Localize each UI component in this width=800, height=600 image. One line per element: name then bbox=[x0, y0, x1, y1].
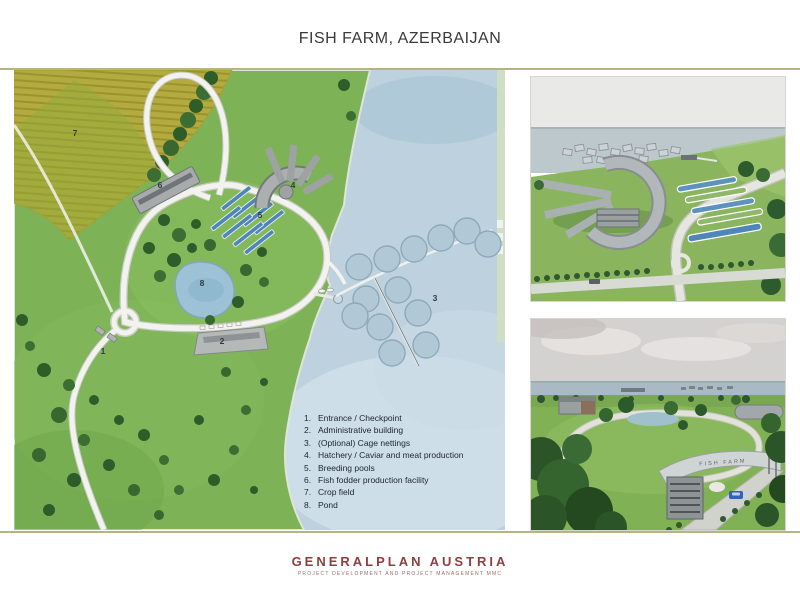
map-marker-4: 4 bbox=[291, 180, 296, 190]
left-building bbox=[559, 397, 595, 414]
footer-tagline: PROJECT DEVELOPMENT AND PROJECT MANAGEME… bbox=[0, 571, 800, 577]
far-shore-strip bbox=[497, 70, 505, 342]
page-title: FISH FARM, AZERBAIJAN bbox=[0, 30, 800, 48]
boat bbox=[319, 289, 326, 293]
boat bbox=[681, 155, 697, 160]
legend-item: 4.Hatchery / Caviar and meat production bbox=[304, 449, 514, 461]
sky bbox=[531, 77, 785, 127]
map-marker-6: 6 bbox=[158, 180, 163, 190]
render-entrance-view: FISH FARM bbox=[530, 318, 786, 531]
legend-item: 1.Entrance / Checkpoint bbox=[304, 412, 514, 424]
map-marker-7: 7 bbox=[73, 128, 78, 138]
legend-item: 6.Fish fodder production facility bbox=[304, 474, 514, 486]
legend-item: 5.Breeding pools bbox=[304, 462, 514, 474]
footer-company-logo: GENERALPLAN AUSTRIA bbox=[0, 554, 800, 569]
legend-item: 8.Pond bbox=[304, 499, 514, 511]
legend: 1.Entrance / Checkpoint 2.Administrative… bbox=[304, 412, 514, 511]
sea bbox=[531, 381, 785, 397]
car-blue bbox=[729, 491, 743, 499]
sculpture bbox=[709, 482, 725, 492]
legend-item: 2.Administrative building bbox=[304, 424, 514, 436]
legend-item: 7.Crop field bbox=[304, 486, 514, 498]
render-aerial-view bbox=[530, 76, 786, 302]
boat bbox=[327, 288, 334, 292]
map-marker-8: 8 bbox=[200, 278, 205, 288]
map-marker-5: 5 bbox=[258, 210, 263, 220]
site-plan-panel: 1 2 3 4 5 6 7 8 1.Entrance / Checkpoint … bbox=[14, 70, 505, 530]
car bbox=[589, 279, 600, 284]
legend-item: 3.(Optional) Cage nettings bbox=[304, 437, 514, 449]
aerial-render-image bbox=[531, 77, 785, 301]
entrance-render-image: FISH FARM bbox=[531, 319, 785, 530]
map-marker-3: 3 bbox=[433, 293, 438, 303]
map-marker-1: 1 bbox=[101, 346, 106, 356]
map-marker-2: 2 bbox=[220, 336, 225, 346]
